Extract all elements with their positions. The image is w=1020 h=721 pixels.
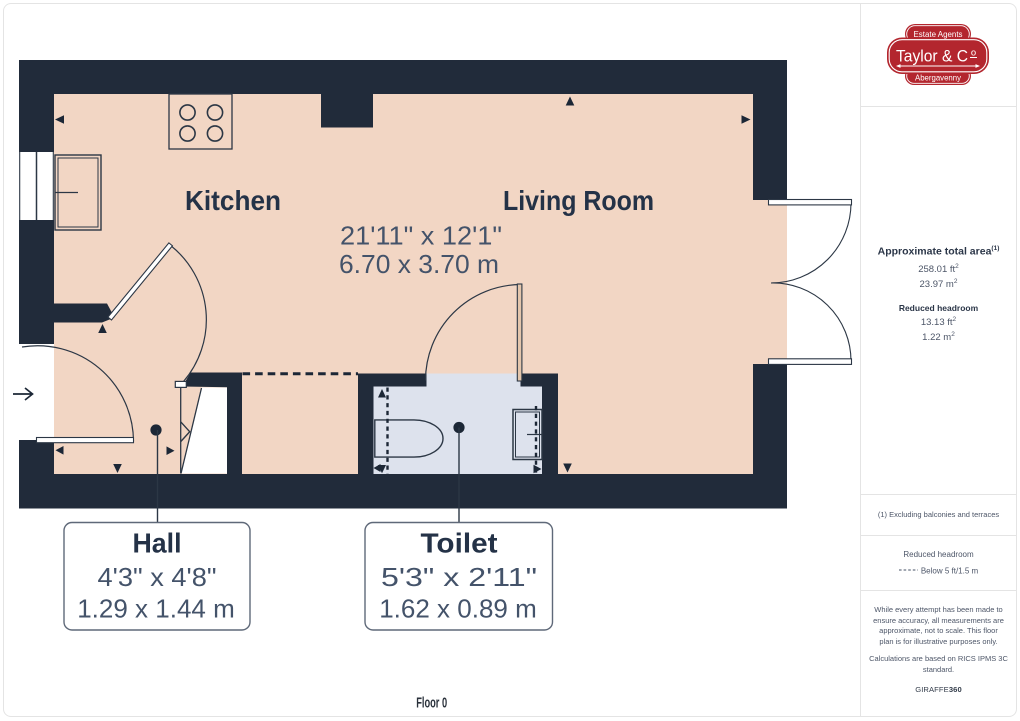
svg-text:Below 5 ft/1.5 m: Below 5 ft/1.5 m (921, 567, 979, 576)
svg-text:1.29 x 1.44 m: 1.29 x 1.44 m (77, 594, 235, 624)
svg-text:Floor 0: Floor 0 (416, 695, 447, 712)
svg-text:Hall: Hall (133, 528, 182, 559)
svg-text:Toilet: Toilet (421, 528, 498, 559)
svg-text:Taylor & C: Taylor & C (896, 47, 968, 66)
svg-text:4'3" x 4'8": 4'3" x 4'8" (98, 562, 217, 592)
svg-text:21'11" x 12'1": 21'11" x 12'1" (340, 221, 502, 251)
svg-text:1.62 x 0.89 m: 1.62 x 0.89 m (379, 594, 537, 624)
svg-text:Living Room: Living Room (503, 185, 654, 216)
svg-text:5'3" x 2'11": 5'3" x 2'11" (381, 562, 537, 592)
svg-text:Kitchen: Kitchen (185, 185, 281, 216)
svg-text:Estate Agents: Estate Agents (914, 29, 963, 39)
svg-text:Abergavenny: Abergavenny (915, 72, 962, 82)
svg-text:o: o (971, 48, 976, 59)
svg-text:6.70 x 3.70 m: 6.70 x 3.70 m (339, 249, 499, 279)
